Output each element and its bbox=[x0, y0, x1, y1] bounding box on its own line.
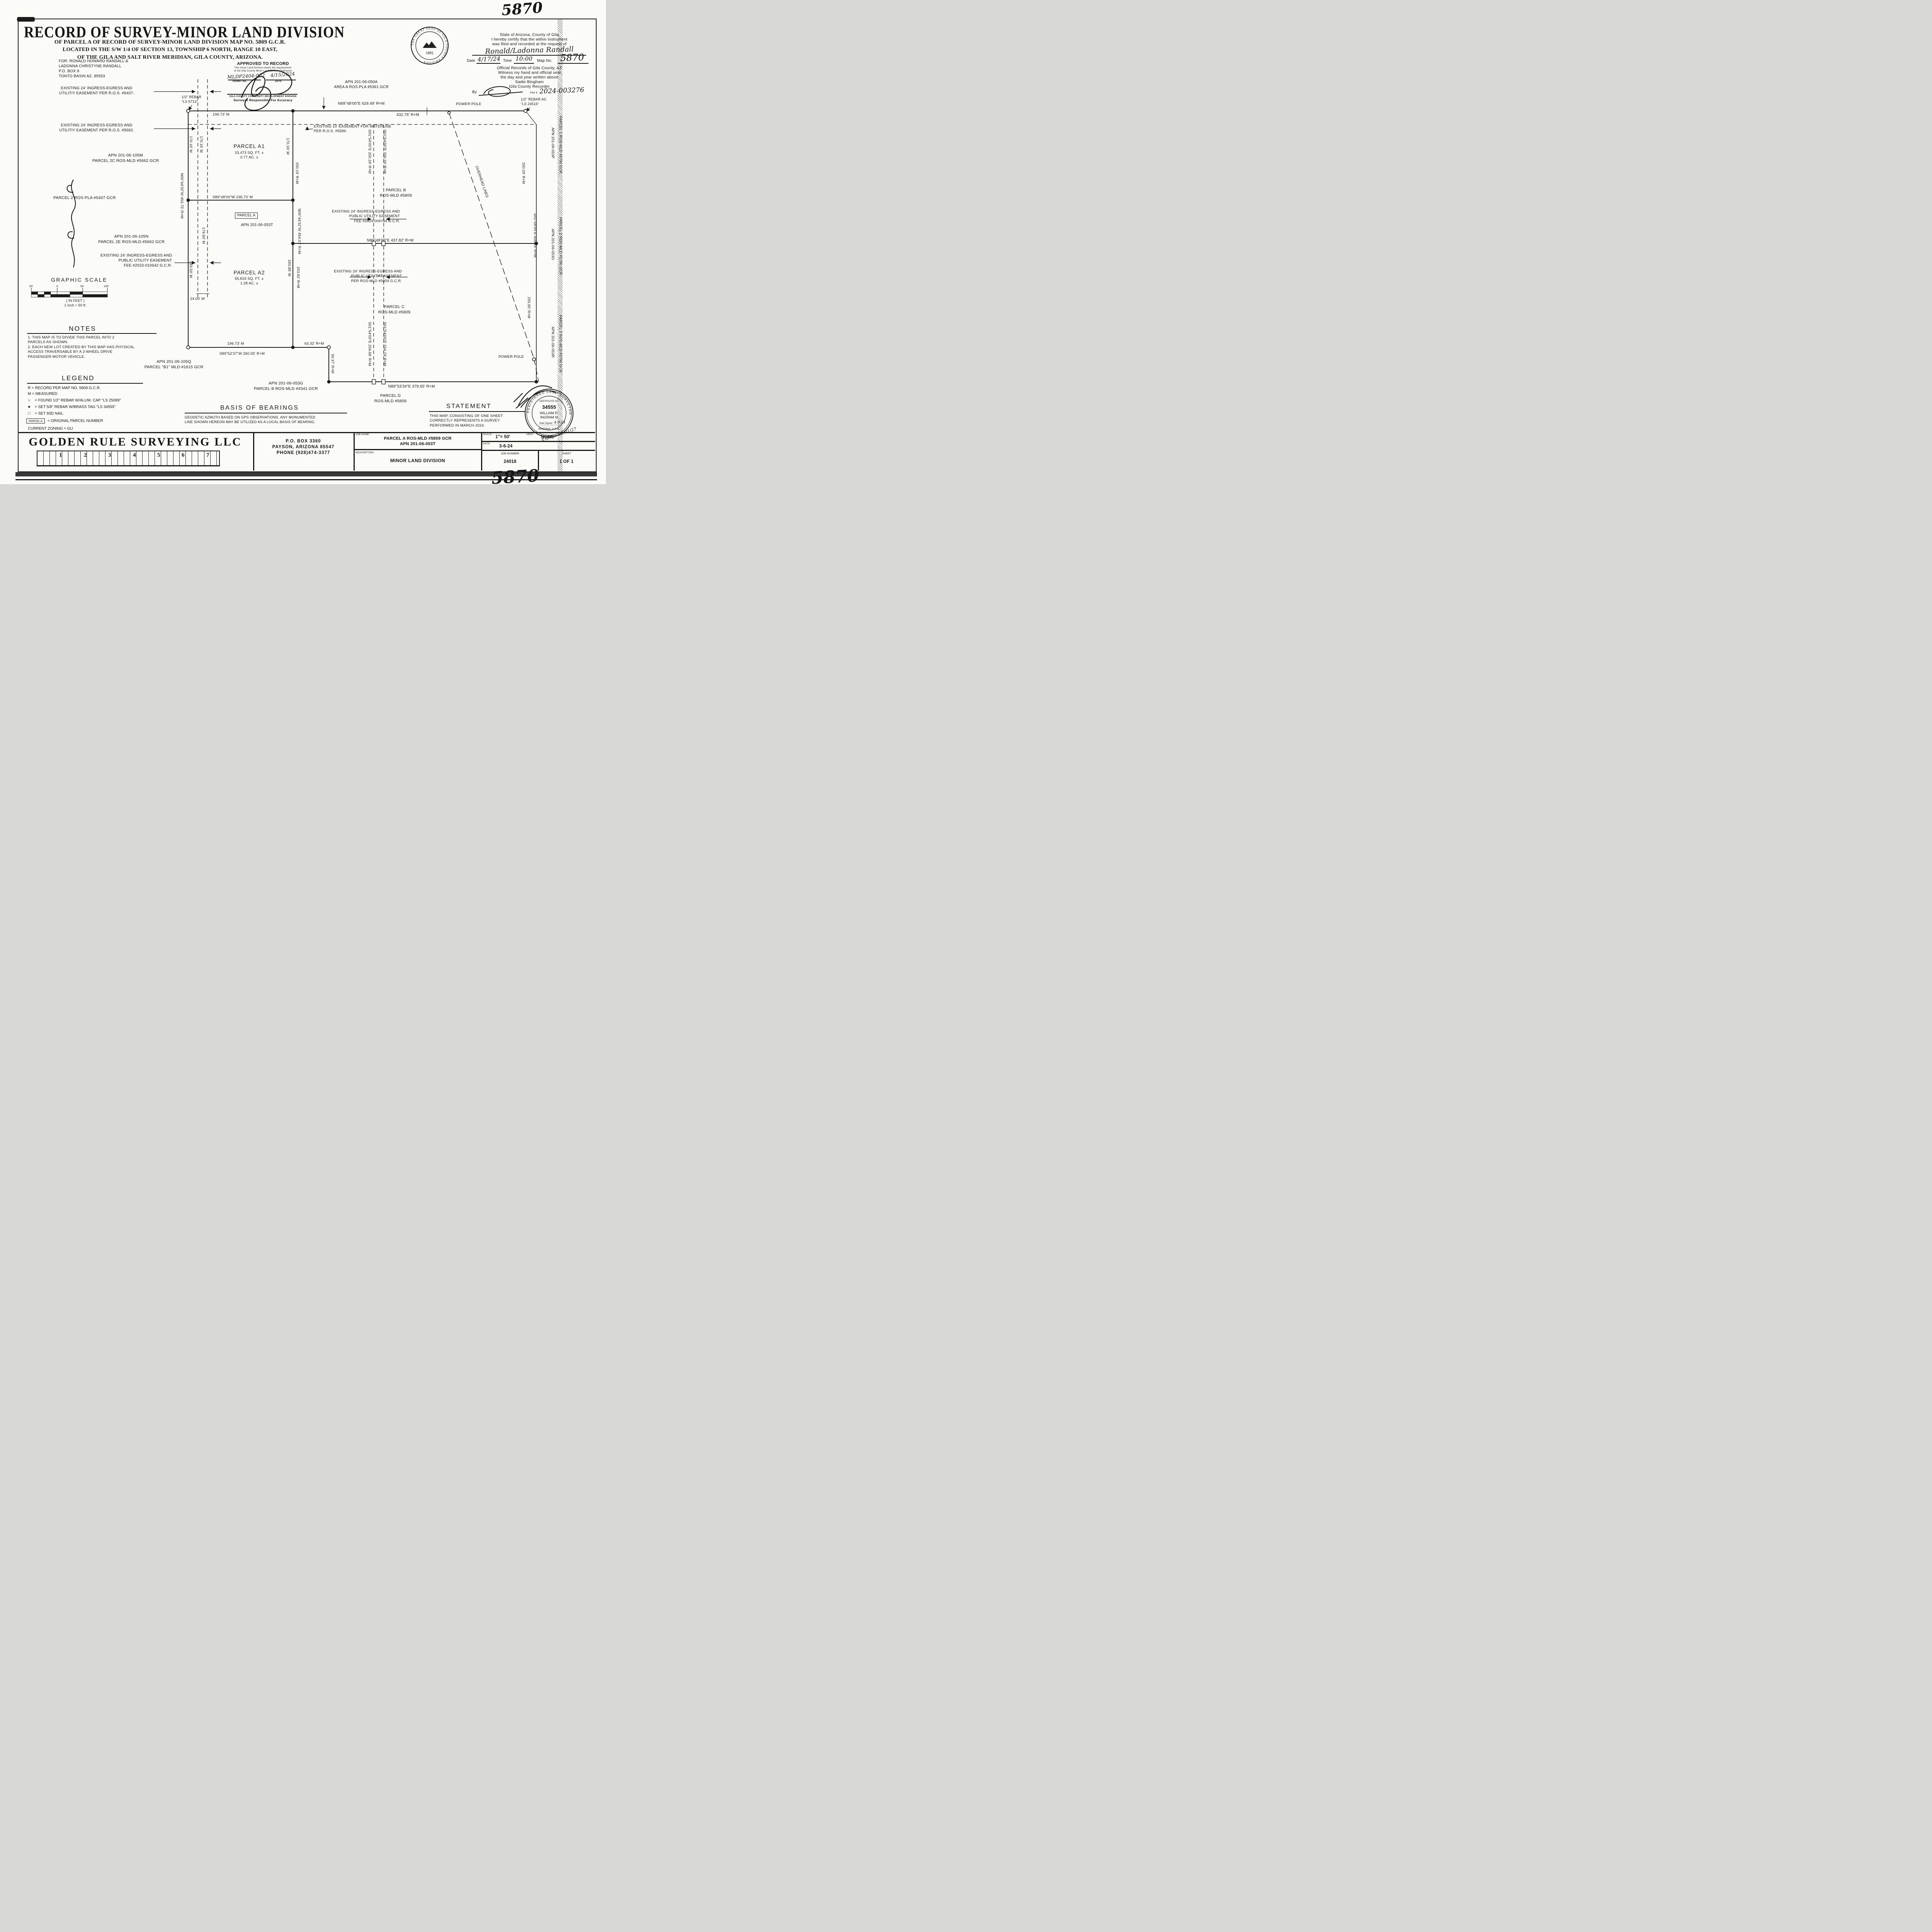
scale-label: SCALE: bbox=[483, 433, 492, 436]
easement-note-009794: EXISTING 24' INGRESS-EGRESS AND PUBLIC U… bbox=[309, 209, 400, 224]
scale-tick-100: 100 bbox=[104, 284, 109, 288]
titleblock-div-3 bbox=[481, 432, 482, 471]
dim-170-16-a: 170.16' M bbox=[188, 136, 193, 153]
basis-heading: BASIS OF BEARINGS bbox=[220, 404, 299, 412]
dim-s01-250-29-b: S01°54'00"E 250.29' R+M bbox=[382, 129, 387, 173]
dim-24-00: 24.00' M bbox=[190, 297, 205, 301]
apn-053o-line1: APN 201-06-053O bbox=[550, 229, 555, 260]
recorder-by-label: By bbox=[472, 90, 477, 95]
set-rebar-icon: ● bbox=[26, 405, 32, 409]
legend-record: R = RECORD PER MAP NO. 5809 G.C.R. bbox=[28, 386, 100, 390]
notes-underline bbox=[27, 333, 156, 334]
apn-053p-line2: PARCEL 1 ROS-MLD #5790 GCR bbox=[558, 116, 563, 173]
scale-ratio: 1 inch = 50 ft. bbox=[44, 303, 106, 308]
legend-set: ●= SET 5/8" REBAR W/BRASS TAG "LS 34555" bbox=[26, 405, 116, 409]
dim-s89-260-05: S89°52'37"W 260.05' R+M bbox=[219, 352, 265, 356]
vert-value: NONE bbox=[541, 434, 554, 440]
statement-heading: STATEMENT bbox=[446, 403, 492, 411]
parcel2-pla-label: PARCEL 2 ROS-PLA #5407 GCR bbox=[53, 196, 116, 201]
legend-nail: □= SET 60D NAIL bbox=[26, 411, 63, 416]
recorder-time-line bbox=[514, 63, 534, 64]
job-number-value: 24018 bbox=[483, 459, 537, 465]
ruler-4: 4 bbox=[133, 452, 136, 459]
apn-050a-label: APN 201-06-050A AREA A ROS-PLA #5361 GCR bbox=[325, 80, 398, 90]
legend-heading: LEGEND bbox=[62, 374, 95, 383]
recorder-date-label: Date bbox=[467, 58, 475, 63]
apn-053o-line2: PARCEL 2 ROS-MLD #5790 GCR bbox=[558, 217, 563, 275]
scale-tick-0: 0 bbox=[56, 284, 58, 288]
dim-179-93: 179.93' M bbox=[201, 227, 206, 244]
map-subtitle-2: LOCATED IN THE S/W 1/4 OF SECTION 13, TO… bbox=[46, 46, 294, 53]
handwritten-map-number-top: 5870 bbox=[501, 0, 543, 20]
legend-found: ○= FOUND 1/2" REBAR W/ALUM. CAP "LS 2508… bbox=[26, 398, 121, 403]
parcel-a-apn: APN 201-06-053T bbox=[226, 223, 288, 228]
recorder-fee-value: 2024-003276 bbox=[539, 86, 585, 96]
set-nail-icon: □ bbox=[26, 411, 32, 416]
scale-divider bbox=[481, 441, 595, 442]
recorder-map-value: 5870 bbox=[560, 51, 584, 64]
company-ruler: 1 2 3 4 5 6 7 bbox=[37, 451, 220, 466]
dim-s01-254-66: S01°54'00"E 254.66' R+M bbox=[367, 322, 372, 366]
recorder-date-line bbox=[476, 63, 500, 64]
legend-original-text: = ORIGINAL PARCEL NUMBER bbox=[48, 419, 103, 423]
jobname-divider bbox=[354, 449, 482, 450]
parcel-a-original-box: PARCEL A bbox=[235, 213, 258, 219]
rebar-5713-label: 1/2" REBAR "LS 5713" bbox=[182, 95, 216, 104]
ruler-6: 6 bbox=[182, 452, 185, 459]
parcel-a1-title: PARCEL A1 bbox=[216, 143, 282, 150]
ruler-7: 7 bbox=[206, 452, 209, 459]
date-value: 3-6-24 bbox=[499, 444, 512, 449]
dim-s01-505-29: S01°54'00"E 505.29' R+M bbox=[532, 213, 537, 257]
legend-record-text: R = RECORD PER MAP NO. 5809 G.C.R. bbox=[28, 386, 100, 390]
rebar-24516-label: 1/2" REBAR AC "LS 24516" bbox=[521, 97, 560, 106]
power-pole-bottom-label: POWER POLE bbox=[498, 355, 524, 359]
apn-105n-label: APN 201-06-105N PARCEL 2E ROS-MLD #5662 … bbox=[79, 234, 184, 245]
recorder-date-value: 4/17/24 bbox=[478, 55, 501, 64]
legend-nail-text: = SET 60D NAIL bbox=[35, 412, 63, 416]
parcel-c-label: PARCEL C ROS-MLD #5809 bbox=[366, 304, 422, 315]
company-address: P.O. BOX 3360 PAYSON, ARIZONA 85547 PHON… bbox=[255, 439, 352, 456]
description-label: DESCRIPTION: bbox=[355, 451, 374, 454]
permit-label: PERMIT NO. bbox=[233, 80, 247, 83]
description-value: MINOR LAND DIVISION bbox=[355, 458, 480, 464]
legend-measured: M = MEASURED bbox=[28, 392, 57, 396]
parcel-a1-area: 33,473 SQ. FT. ± 0.77 AC. ± bbox=[216, 151, 282, 160]
dim-170-16-c: 170.16' M bbox=[285, 138, 290, 155]
legend-measured-text: M = MEASURED bbox=[28, 392, 57, 396]
dim-s01-254-79: S01°54'00"E 254.79' R+M bbox=[382, 322, 387, 366]
dim-250-19: 250.19' R+M bbox=[294, 162, 299, 184]
scale-value: 1"= 50' bbox=[495, 434, 510, 440]
ruler-5: 5 bbox=[157, 452, 160, 459]
dim-s01-250-29-a: S01°54'00"E 250.29' R+M bbox=[367, 129, 372, 173]
dim-432-76: 432.76' R+M bbox=[389, 112, 426, 117]
legend-zoning-text: CURRENT ZONING = GU bbox=[28, 427, 73, 431]
dim-203-82: 203.82' R+M bbox=[296, 267, 300, 288]
easement-note-010642: EXISTING 24' INGRESS-EGRESS AND PUBLIC U… bbox=[54, 253, 172, 268]
dim-283-59: 283.59' M bbox=[188, 261, 193, 278]
scale-tick-50l: 50 bbox=[29, 284, 33, 288]
parcel-b-label: PARCEL B ROS-MLD #5809 bbox=[368, 188, 424, 198]
graphic-scale-heading: GRAPHIC SCALE bbox=[41, 276, 118, 283]
dim-170-16-b: 170.16' M bbox=[199, 136, 203, 153]
ruler-1: 1 bbox=[59, 452, 62, 459]
recorder-time-label: Time bbox=[503, 58, 512, 63]
sheet-label: SHEET bbox=[539, 452, 594, 456]
recorder-fee-label: Fee # bbox=[530, 91, 537, 95]
dim-50-37: 50.37' R+M bbox=[330, 354, 335, 374]
map-subtitle-1: OF PARCEL A OF RECORD OF SURVEY-MINOR LA… bbox=[46, 39, 294, 46]
dim-283-86: 283.86' M bbox=[287, 260, 291, 276]
apn-053p-line1: APN 201-06-053P bbox=[550, 128, 555, 158]
dim-n00-453-75: N00°44'32"W 453.75' R+M bbox=[179, 173, 184, 219]
power-pole-top-label: POWER POLE bbox=[456, 102, 481, 107]
ruler-3: 3 bbox=[108, 452, 111, 459]
legend-found-text: = FOUND 1/2" REBAR W/ALUM. CAP "LS 25089… bbox=[35, 398, 121, 403]
for-block: FOR: RONALD HOWARD RANDALL & LADONNA CHR… bbox=[59, 59, 163, 79]
sheet-value: 1 OF 1 bbox=[539, 459, 594, 465]
dim-629-49: N89°48'00"E 629.49' R+M bbox=[325, 101, 398, 106]
statement-body: THIS MAP, CONSISTING OF ONE SHEET CORREC… bbox=[430, 414, 528, 428]
dim-196-73-top: 196.73' M bbox=[204, 112, 238, 117]
recorder-map-line bbox=[558, 63, 588, 64]
dim-n00-454-01: N00°44'32"W 454.01' R+M bbox=[297, 209, 301, 254]
statement-underline bbox=[429, 411, 526, 412]
parcel-a2-area: 55,815 SQ. FT. ± 1.28 AC. ± bbox=[216, 277, 282, 286]
dim-s89-196-73: S89°48'00"W 196.73' M bbox=[213, 195, 253, 200]
easement-note-5809: EXISTING 24' INGRESS-EGRESS AND PUBLIC U… bbox=[311, 269, 402, 284]
titleblock-div-2 bbox=[354, 432, 355, 471]
scale-tick-50r: 50 bbox=[80, 284, 84, 288]
company-name: GOLDEN RULE SURVEYING LLC bbox=[23, 434, 247, 449]
job-number-label: JOB NUMBER bbox=[483, 452, 537, 456]
apn-053r-line1: APN 201-06-053R bbox=[550, 327, 555, 358]
apn-053r-line2: PARCEL 3 ROS-MLD #5790 GCR bbox=[558, 315, 563, 372]
notes-heading: NOTES bbox=[69, 325, 96, 333]
survey-sheet: RECORD OF SURVEY-MINOR LAND DIVISION OF … bbox=[0, 0, 606, 484]
dim-255-00: 255.00' R+M bbox=[526, 297, 531, 318]
dim-24ft: 24' bbox=[373, 274, 385, 279]
parcel-a-box-icon: PARCEL A bbox=[26, 418, 45, 423]
notes-body: 1. THIS MAP IS TO DIVIDE THIS PARCEL INT… bbox=[28, 335, 161, 359]
scale-unit: ( IN FEET ) bbox=[44, 299, 106, 303]
date-label: DATE: bbox=[483, 442, 491, 446]
dim-250-29-r: 250.29' R+M bbox=[521, 162, 526, 184]
dim-437-82: N89°48'00"E 437.82' R+M bbox=[355, 238, 425, 243]
titleblock-top-border bbox=[18, 432, 595, 433]
legend-underline bbox=[27, 383, 143, 384]
legend-set-text: = SET 5/8" REBAR W/BRASS TAG "LS 34555" bbox=[35, 405, 116, 409]
parcel-a2-title: PARCEL A2 bbox=[216, 269, 282, 276]
legend-original-parcel: PARCEL A= ORIGINAL PARCEL NUMBER bbox=[26, 418, 103, 423]
apn-105q-label: APN 201-06-105Q PARCEL "B1" MLD #1615 GC… bbox=[122, 359, 226, 370]
dim-379-65: N89°53'34"E 379.65' R+M bbox=[377, 384, 446, 389]
handwritten-map-number-bottom: 5870 bbox=[491, 465, 540, 484]
vert-label: VERT: bbox=[526, 433, 534, 436]
parcel-d-label: PARCEL D ROS-MLD #5809 bbox=[362, 393, 418, 404]
recorder-time-value: 10:00 bbox=[515, 55, 532, 63]
job-name-value: PARCEL A ROS-MLD #5809 GCR APN 201-06-05… bbox=[355, 436, 480, 447]
ruler-2: 2 bbox=[84, 452, 87, 459]
accuracy-note: Surveyor Responsible For Accuracy bbox=[225, 98, 301, 102]
dim-63-32: 63.32' R+M bbox=[304, 342, 324, 346]
legend-zoning: CURRENT ZONING = GU bbox=[28, 427, 73, 431]
basis-underline bbox=[185, 413, 347, 413]
easement-note-5662: EXISTING 24' INGRESS-EGRESS AND UTILITIY… bbox=[39, 123, 155, 133]
easement-note-5407: EXISTING 24' INGRESS-EGRESS AND UTILITIY… bbox=[39, 86, 155, 96]
date-label: DATE bbox=[275, 80, 282, 83]
found-rebar-icon: ○ bbox=[26, 398, 32, 403]
titleblock-div-1 bbox=[253, 432, 254, 471]
dim-196-73-bottom: 196.73' M bbox=[218, 342, 253, 346]
apn-105m-label: APN 201-06-105M PARCEL 2C ROS-MLD #5662 … bbox=[73, 153, 178, 163]
apn-053g-label: APN 201-06-053G PARCEL B ROS-MLD #4341 G… bbox=[230, 381, 342, 391]
approved-heading: APPROVED TO RECORD bbox=[225, 61, 301, 66]
recorder-map-label: Map No. bbox=[537, 58, 552, 63]
basis-body: GEODETIC AZMUTH BASED ON GPS OBSERVATION… bbox=[185, 415, 351, 425]
waterline-note: EXISTING 10' EASEMENT FOR WATERLINE PER … bbox=[314, 124, 410, 134]
division-line bbox=[227, 94, 298, 95]
